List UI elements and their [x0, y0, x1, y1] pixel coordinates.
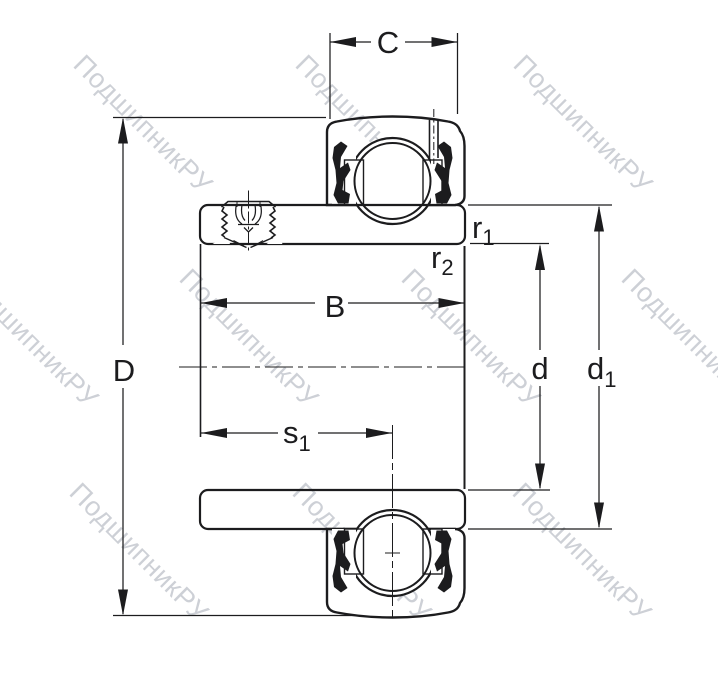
watermark-text: ПодшипникРУ [616, 263, 718, 414]
dim-r2-label: r2 [431, 240, 454, 280]
watermark-text: ПодшипникРУ [68, 49, 219, 200]
dim-D-label: D [113, 353, 135, 388]
dim-s1-label: s1 [283, 415, 311, 456]
dim-B-label: B [325, 289, 346, 324]
watermark-text: ПодшипникРУ [508, 49, 659, 200]
dimension-r2: r2 [431, 240, 454, 280]
bearing-cross-section-diagram: ПодшипникРУ ПодшипникРУ ПодшипникРУ Подш… [0, 0, 718, 682]
dim-C-arrow-right [432, 37, 458, 47]
dim-D-arrow-bottom [118, 590, 128, 616]
watermark-text: ПодшипникРУ [0, 263, 104, 414]
dim-s1-arrow-right [366, 428, 392, 438]
dim-C-label: C [377, 25, 399, 60]
watermark-text: ПодшипникРУ [396, 263, 547, 414]
dim-d1-label: d1 [587, 351, 617, 392]
bearing-drawing-canvas: ПодшипникРУ ПодшипникРУ ПодшипникРУ Подш… [0, 0, 718, 682]
dim-C-arrow-left [330, 37, 356, 47]
watermark-text: ПодшипникРУ [174, 263, 325, 414]
watermark-text: ПодшипникРУ [507, 477, 658, 628]
dim-d-arrow-top [535, 244, 545, 270]
dim-d-label: d [531, 351, 548, 386]
dim-d1-arrow-top [594, 206, 604, 232]
dim-d1-arrow-bottom [594, 503, 604, 529]
dimension-r1: r1 [470, 210, 549, 250]
screw-thread-right [270, 207, 275, 238]
screw-thread-left [222, 207, 227, 238]
dim-r1-label: r1 [472, 210, 495, 250]
dim-s1-arrow-left [201, 428, 227, 438]
dimension-s1: s1 [201, 415, 392, 456]
watermark-text: ПодшипникРУ [64, 477, 215, 628]
